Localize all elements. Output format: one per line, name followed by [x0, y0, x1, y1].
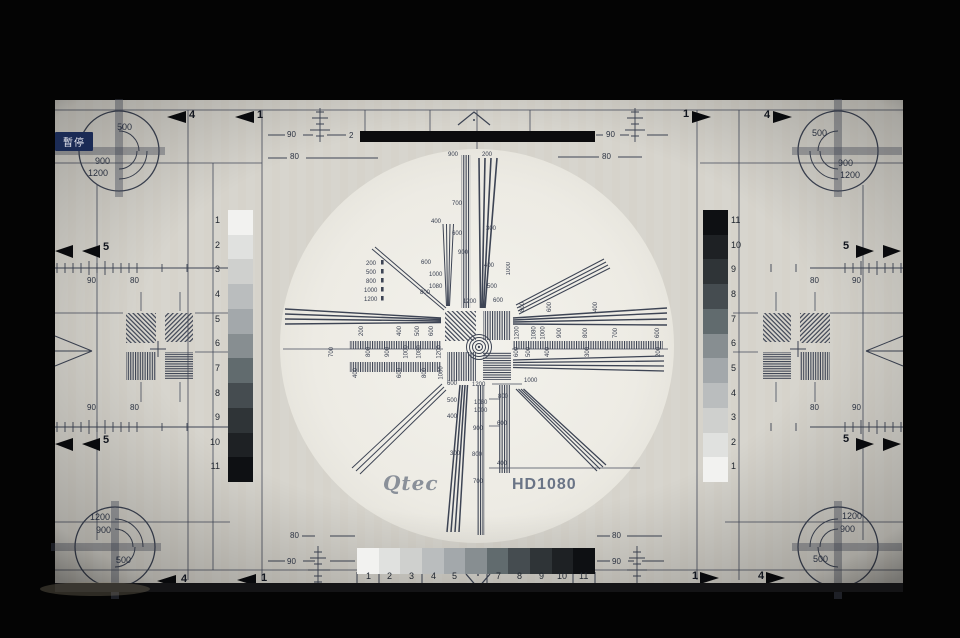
osd-pause-badge: 暫停: [55, 132, 93, 151]
corner-label: 1200: [90, 513, 110, 522]
ruler-label: 90: [87, 277, 96, 285]
scale-number: 4: [731, 389, 736, 398]
vignette-overlay: [55, 100, 903, 592]
edge-number: 5: [103, 435, 109, 446]
res-label: 1200: [515, 326, 521, 339]
scale-number: 7: [731, 315, 736, 324]
res-label: 800: [583, 328, 589, 338]
scale-number: 5: [731, 364, 736, 373]
scale-number: 7: [204, 364, 220, 373]
res-label: 700: [473, 479, 483, 485]
res-label: 600: [421, 260, 431, 266]
res-label: 500: [526, 347, 532, 357]
res-label: 1000: [506, 262, 512, 275]
res-label: 600: [655, 328, 661, 338]
scale-number: 11: [579, 572, 588, 581]
res-label: 600: [493, 298, 503, 304]
res-label: 1000: [541, 326, 547, 339]
res-label: 800: [366, 347, 372, 357]
ruler-label: 90: [287, 558, 296, 566]
ruler-label: 80: [290, 532, 299, 540]
edge-number: 4: [764, 110, 770, 121]
res-label: 1000: [429, 272, 442, 278]
ruler-label: 80: [602, 153, 611, 161]
ruler-label: 90: [87, 404, 96, 412]
edge-number: 5: [103, 242, 109, 253]
scale-number: 11: [204, 462, 220, 471]
ruler-label: 2: [349, 132, 353, 140]
scale-number: 10: [557, 572, 567, 581]
res-label: 200: [482, 152, 492, 158]
res-label: 1000: [439, 366, 445, 379]
res-label: 900: [473, 426, 483, 432]
ruler-label: 90: [852, 277, 861, 285]
edge-number: 4: [758, 571, 764, 582]
res-label: 800: [520, 302, 526, 312]
corner-label: 900: [95, 157, 110, 166]
res-label: 400: [593, 302, 599, 312]
res-label: 500: [487, 284, 497, 290]
res-label: 600: [447, 381, 457, 387]
scale-number: 11: [731, 216, 740, 225]
scale-number: 1: [731, 462, 736, 471]
scale-number: 5: [204, 315, 220, 324]
scale-number: 3: [731, 413, 736, 422]
scale-number: 8: [204, 389, 220, 398]
scale-number: 9: [731, 265, 736, 274]
ruler-label: 90: [606, 131, 615, 139]
scale-number: 2: [387, 572, 392, 581]
corner-label: 500: [813, 555, 828, 564]
res-label: 200: [359, 326, 365, 336]
edge-number: 1: [692, 571, 698, 582]
res-label: 900: [385, 347, 391, 357]
res-label: 800: [498, 394, 508, 400]
edge-number: 1: [257, 110, 263, 121]
monitor-photo: 暫停 4 1 1 4 4 1 1 4 5 5 5 5 90 2 90 80 80…: [0, 0, 960, 638]
edge-number: 1: [261, 573, 267, 584]
res-label: 600: [514, 347, 520, 357]
scale-number: 4: [204, 290, 220, 299]
corner-label: 900: [840, 525, 855, 534]
ruler-label: 80: [810, 277, 819, 285]
scale-number: 7: [496, 572, 501, 581]
res-label: 400: [484, 263, 494, 269]
res-label: 1000: [524, 378, 537, 384]
grayscale-right: [703, 210, 728, 482]
res-label: 400: [447, 414, 457, 420]
res-label: 200: [656, 347, 662, 357]
edge-number: 5: [843, 434, 849, 445]
res-label: 700: [452, 201, 462, 207]
edge-number: 1: [683, 109, 689, 120]
res-label: 1000: [404, 345, 410, 358]
ruler-label: 90: [612, 558, 621, 566]
res-label: 400: [545, 347, 551, 357]
res-label: 1200: [463, 299, 476, 305]
scale-number: 6: [731, 339, 736, 348]
res-label: 800: [472, 452, 482, 458]
scale-number: 9: [204, 413, 220, 422]
scale-number: 6: [204, 339, 220, 348]
res-label: 800: [422, 368, 428, 378]
scale-number: 10: [204, 438, 220, 447]
corner-label: 900: [838, 159, 853, 168]
corner-label: 900: [96, 526, 111, 535]
res-label: 400: [431, 219, 441, 225]
res-label: 1080: [532, 326, 538, 339]
res-label: 800: [420, 290, 430, 296]
res-label: 300: [486, 226, 496, 232]
edge-number: 5: [843, 241, 849, 252]
edge-number: 4: [181, 574, 187, 585]
grayscale-left: [228, 210, 253, 482]
res-label: 700: [613, 328, 619, 338]
res-label: 400: [353, 368, 359, 378]
res-label: 200: [366, 261, 376, 267]
ruler-label: 90: [287, 131, 296, 139]
corner-label: 500: [812, 129, 827, 138]
res-label: 500: [415, 326, 421, 336]
res-label: 1000: [474, 408, 487, 414]
corner-label: 1200: [88, 169, 108, 178]
res-label: 1080: [429, 284, 442, 290]
ruler-label: 80: [612, 532, 621, 540]
res-label: 600: [452, 231, 462, 237]
res-label: 800: [366, 279, 376, 285]
ruler-label: 80: [810, 404, 819, 412]
res-label: 900: [557, 328, 563, 338]
scale-number: 8: [517, 572, 522, 581]
scale-number: 4: [431, 572, 436, 581]
scale-number: 10: [731, 241, 741, 250]
res-label: 300: [585, 347, 591, 357]
res-label: 900: [458, 250, 468, 256]
corner-label: 1200: [840, 171, 860, 180]
res-label: 1200: [472, 382, 485, 388]
res-label: 900: [448, 152, 458, 158]
edge-number: 4: [189, 110, 195, 121]
res-label: 600: [547, 302, 553, 312]
model-label: HD1080: [512, 476, 577, 494]
res-label: 600: [429, 326, 435, 336]
ruler-label: 80: [130, 277, 139, 285]
qtec-logo: Qtec: [383, 471, 439, 495]
scale-number: 3: [409, 572, 414, 581]
res-label: 500: [366, 270, 376, 276]
ruler-label: 80: [130, 404, 139, 412]
res-label: 600: [397, 368, 403, 378]
res-label: 1000: [364, 288, 377, 294]
corner-label: 500: [117, 123, 132, 132]
corner-label: 500: [116, 556, 131, 565]
res-label: 700: [329, 347, 335, 357]
scale-number: 3: [204, 265, 220, 274]
res-label: 400: [497, 461, 507, 467]
light-leak: [40, 582, 150, 596]
corner-label: 1200: [842, 512, 862, 521]
scale-number: 2: [731, 438, 736, 447]
scale-number: 1: [366, 572, 371, 581]
scale-number: 1: [204, 216, 220, 225]
ruler-label: 90: [852, 404, 861, 412]
res-label: 1200: [364, 297, 377, 303]
res-label: 1080: [417, 345, 423, 358]
res-label: 400: [397, 326, 403, 336]
res-label: 1080: [474, 400, 487, 406]
scale-number: 5: [452, 572, 457, 581]
res-label: 1200: [437, 345, 443, 358]
scale-number: 8: [731, 290, 736, 299]
test-pattern-art: [0, 0, 960, 638]
scale-number: 9: [539, 572, 544, 581]
res-label: 500: [447, 398, 457, 404]
res-label: 300: [450, 451, 460, 457]
ruler-label: 80: [290, 153, 299, 161]
scale-number: 2: [204, 241, 220, 250]
res-label: 600: [497, 421, 507, 427]
